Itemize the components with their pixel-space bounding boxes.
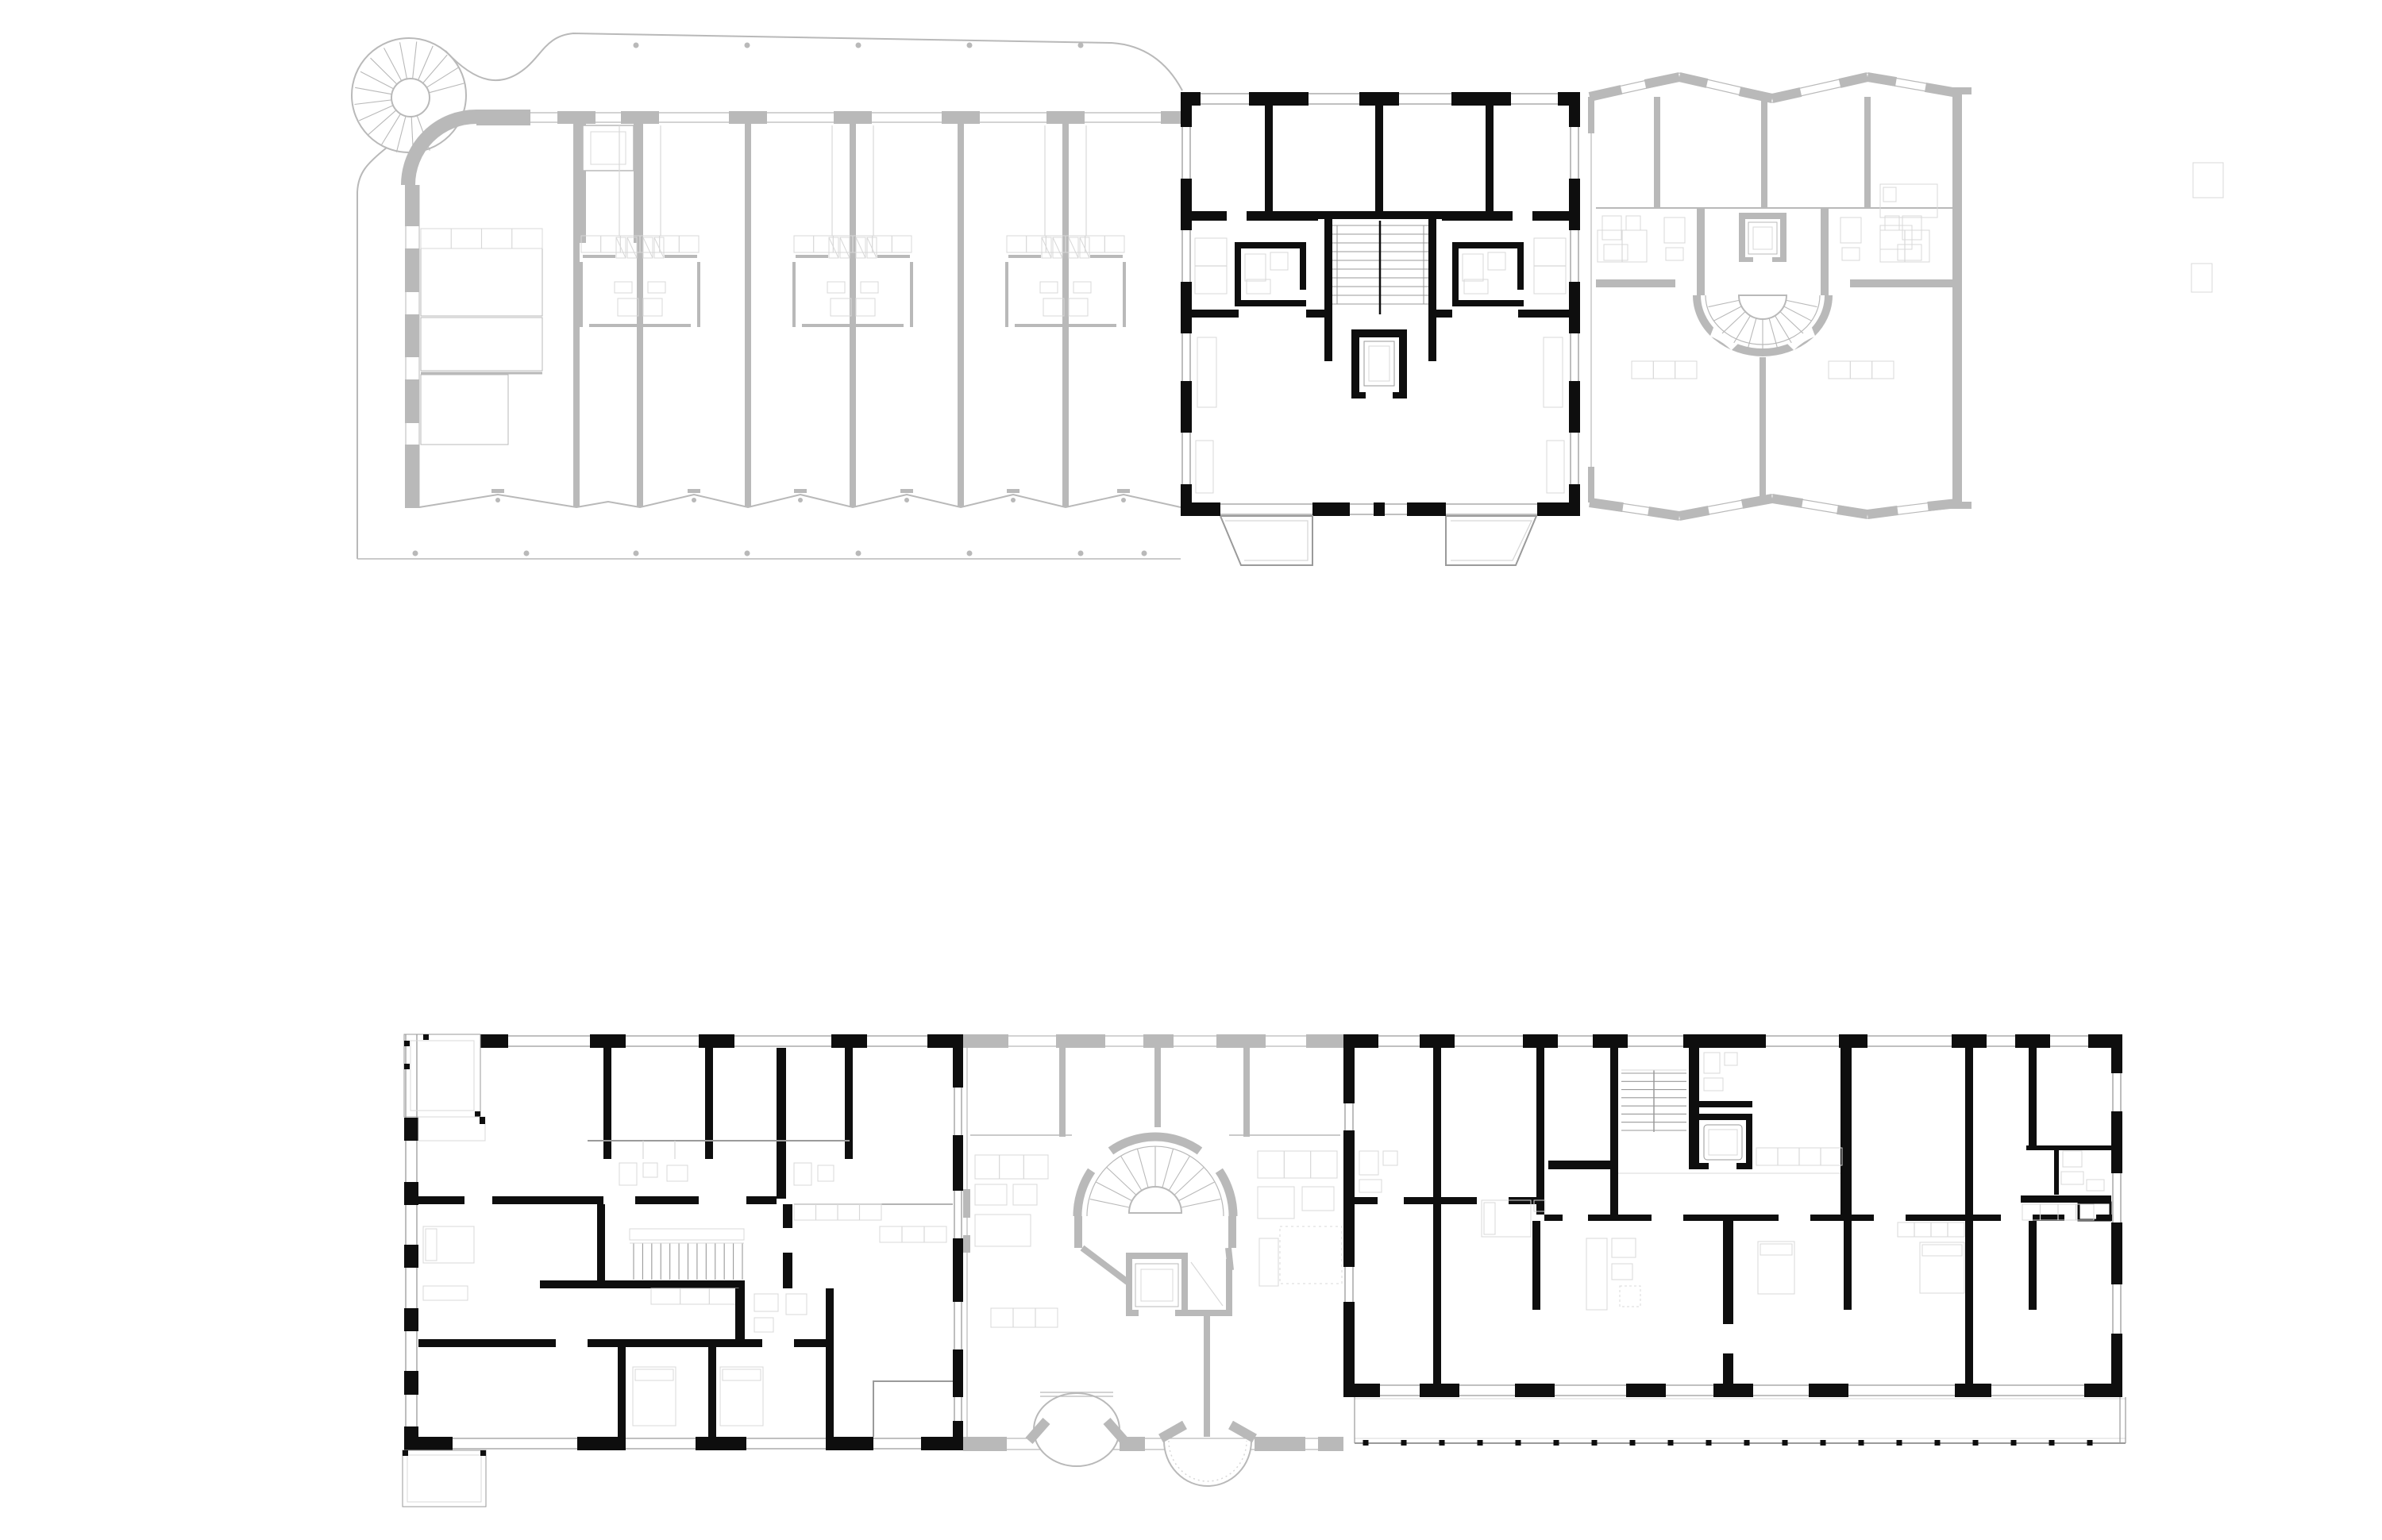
floor-plans-drawing [0,0,2382,1540]
floor-plan-sheet [0,0,2382,1540]
